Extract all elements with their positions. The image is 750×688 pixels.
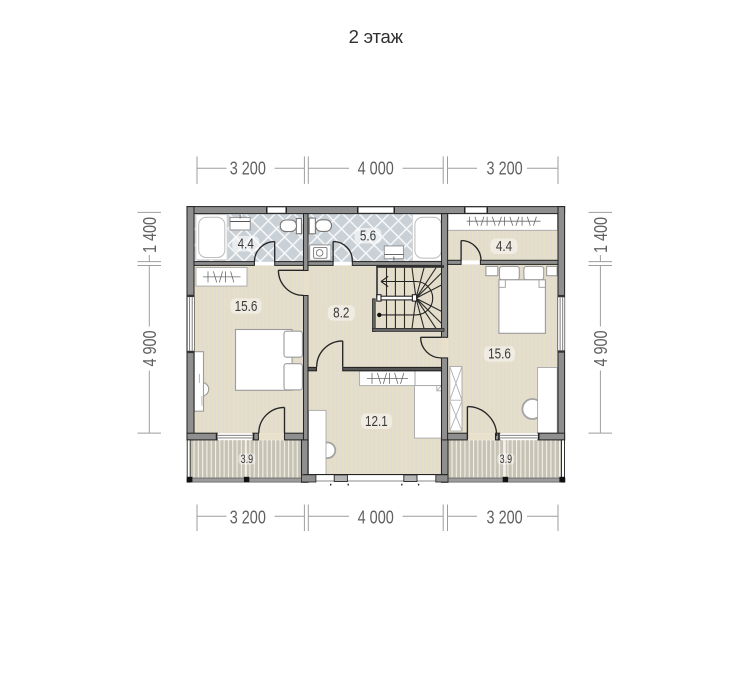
svg-text:15.6: 15.6 [235,297,258,314]
svg-text:4 000: 4 000 [358,507,394,528]
svg-text:4 900: 4 900 [139,330,160,366]
svg-text:2 этаж: 2 этаж [349,26,404,47]
svg-text:4 000: 4 000 [358,158,394,179]
svg-text:12.1: 12.1 [365,413,388,430]
svg-text:4 900: 4 900 [590,330,611,366]
svg-text:3 200: 3 200 [487,158,523,179]
svg-text:3 200: 3 200 [230,507,266,528]
svg-text:3 200: 3 200 [487,507,523,528]
svg-text:4.4: 4.4 [238,235,255,252]
svg-text:1 400: 1 400 [590,217,611,253]
svg-text:3.9: 3.9 [500,454,513,466]
svg-text:15.6: 15.6 [488,345,511,362]
svg-text:1 400: 1 400 [139,217,160,253]
svg-text:3.9: 3.9 [241,454,254,466]
svg-text:3 200: 3 200 [230,158,266,179]
svg-text:5.6: 5.6 [360,227,376,244]
svg-text:8.2: 8.2 [333,304,349,321]
svg-text:4.4: 4.4 [496,238,513,255]
